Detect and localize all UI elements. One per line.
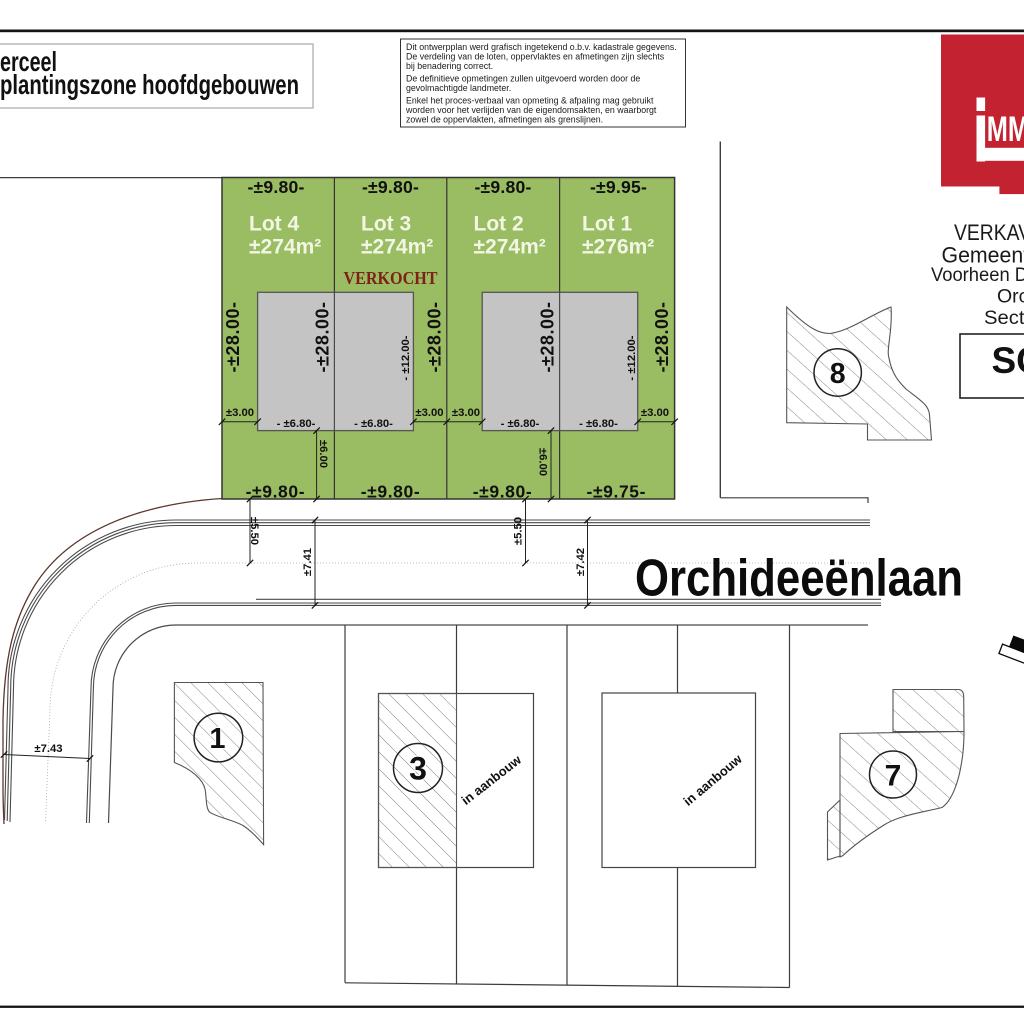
svg-text:-±9.80-: -±9.80-	[247, 177, 304, 197]
svg-text:- ±6.80-: - ±6.80-	[354, 418, 393, 430]
svg-text:-±9.95-: -±9.95-	[590, 177, 647, 197]
svg-text:-±28.00-: -±28.00-	[538, 302, 558, 373]
svg-text:8: 8	[830, 358, 846, 390]
svg-text:VERKOCHT: VERKOCHT	[344, 268, 438, 288]
svg-text:Lot 3: Lot 3	[361, 213, 411, 236]
svg-text:±7.41: ±7.41	[302, 548, 314, 576]
svg-text:Gemeente Stek: Gemeente Stek	[942, 243, 1024, 268]
svg-text:±6.00: ±6.00	[536, 448, 548, 476]
svg-text:-±28.00-: -±28.00-	[652, 302, 672, 373]
svg-text:Voorheen Dorpss: Voorheen Dorpss	[931, 265, 1024, 286]
svg-text:-±9.80-: -±9.80-	[361, 481, 421, 501]
svg-text:-±9.75-: -±9.75-	[587, 481, 647, 501]
svg-text:±3.00: ±3.00	[641, 407, 669, 419]
svg-text:plantingszone hoofdgebouwen: plantingszone hoofdgebouwen	[0, 69, 299, 100]
svg-text:-±9.80-: -±9.80-	[473, 481, 533, 501]
svg-text:-±28.00-: -±28.00-	[223, 302, 243, 373]
svg-text:±7.42: ±7.42	[575, 548, 587, 576]
svg-text:-±9.80-: -±9.80-	[474, 177, 531, 197]
svg-text:SCHAAL: SCHAAL	[992, 340, 1024, 381]
svg-text:3: 3	[409, 751, 427, 787]
svg-text:7: 7	[885, 760, 902, 793]
svg-text:MMO: MMO	[987, 110, 1024, 149]
svg-text:±5.50: ±5.50	[513, 517, 525, 545]
svg-text:Orchideeënlaan: Orchideeënlaan	[635, 550, 963, 608]
svg-text:- ±12.00-: - ±12.00-	[626, 335, 638, 380]
svg-text:1: 1	[209, 723, 225, 755]
svg-text:Dit ontwerpplan werd grafisch: Dit ontwerpplan werd grafisch ingetekend…	[405, 42, 679, 125]
svg-text:-±28.00-: -±28.00-	[313, 302, 333, 373]
svg-text:±3.00: ±3.00	[415, 407, 443, 419]
svg-text:-±28.00-: -±28.00-	[425, 302, 445, 373]
svg-text:-±9.80-: -±9.80-	[246, 481, 306, 501]
svg-text:Lot 1: Lot 1	[582, 213, 632, 236]
svg-text:- ±12.00-: - ±12.00-	[400, 335, 412, 380]
svg-text:±276m²: ±276m²	[582, 236, 654, 259]
svg-text:±274m²: ±274m²	[474, 236, 546, 259]
svg-text:±3.00: ±3.00	[226, 407, 254, 419]
svg-text:-±9.80-: -±9.80-	[362, 177, 419, 197]
svg-text:Sectie A n: Sectie A n	[984, 308, 1024, 329]
svg-text:Orchideeë: Orchideeë	[997, 287, 1024, 308]
svg-text:±3.00: ±3.00	[452, 407, 480, 419]
svg-text:Lot 4: Lot 4	[249, 213, 299, 236]
svg-text:- ±6.80-: - ±6.80-	[579, 418, 618, 430]
svg-text:- ±6.80-: - ±6.80-	[277, 418, 316, 430]
svg-text:±7.43: ±7.43	[34, 743, 62, 755]
svg-text:±6.00: ±6.00	[317, 440, 329, 468]
svg-text:- ±6.80-: - ±6.80-	[501, 418, 540, 430]
svg-text:VERKAVELING: VERKAVELING	[954, 220, 1024, 245]
svg-text:±5.50: ±5.50	[248, 517, 260, 545]
svg-text:±274m²: ±274m²	[361, 236, 433, 259]
svg-text:±274m²: ±274m²	[249, 236, 321, 259]
svg-text:Lot 2: Lot 2	[474, 213, 524, 236]
